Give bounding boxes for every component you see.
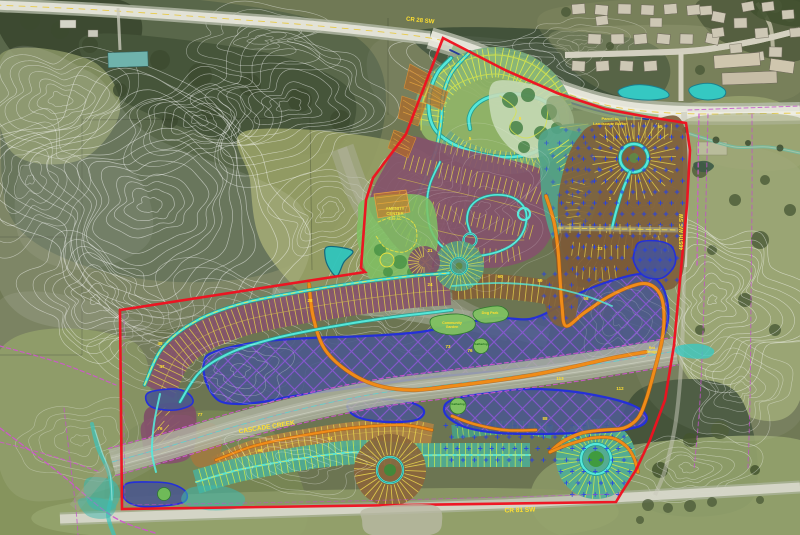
svg-text:55: 55 — [657, 124, 663, 129]
svg-text:47: 47 — [159, 364, 165, 369]
svg-text:Gathering: Gathering — [451, 402, 465, 406]
svg-text:21: 21 — [427, 248, 433, 253]
svg-text:28: 28 — [307, 298, 313, 303]
svg-text:113: 113 — [556, 376, 564, 381]
svg-text:76: 76 — [467, 348, 473, 353]
svg-text:77: 77 — [197, 412, 203, 417]
svg-text:58: 58 — [583, 296, 589, 301]
svg-text:Landscape Buffer: Landscape Buffer — [593, 121, 627, 126]
svg-text:Gathering: Gathering — [474, 342, 488, 346]
svg-text:88: 88 — [542, 416, 548, 421]
svg-text:73: 73 — [445, 344, 451, 349]
svg-text:59: 59 — [537, 278, 543, 283]
svg-text:94: 94 — [327, 436, 333, 441]
svg-text:4.89 AC: 4.89 AC — [388, 217, 401, 221]
svg-text:112: 112 — [616, 386, 624, 391]
svg-text:Dog Park: Dog Park — [482, 311, 500, 315]
svg-text:96: 96 — [257, 448, 263, 453]
svg-text:76: 76 — [157, 426, 163, 431]
svg-text:24: 24 — [427, 282, 433, 287]
svg-text:48: 48 — [157, 341, 163, 346]
svg-text:CR 81 SW: CR 81 SW — [504, 506, 536, 514]
svg-text:CENTER: CENTER — [386, 211, 403, 216]
svg-text:23: 23 — [597, 246, 603, 251]
svg-text:60: 60 — [497, 274, 503, 279]
svg-text:Garden: Garden — [446, 325, 459, 329]
svg-text:Bridge: Bridge — [647, 350, 658, 354]
svg-text:46STH AVE SW: 46STH AVE SW — [679, 214, 685, 250]
